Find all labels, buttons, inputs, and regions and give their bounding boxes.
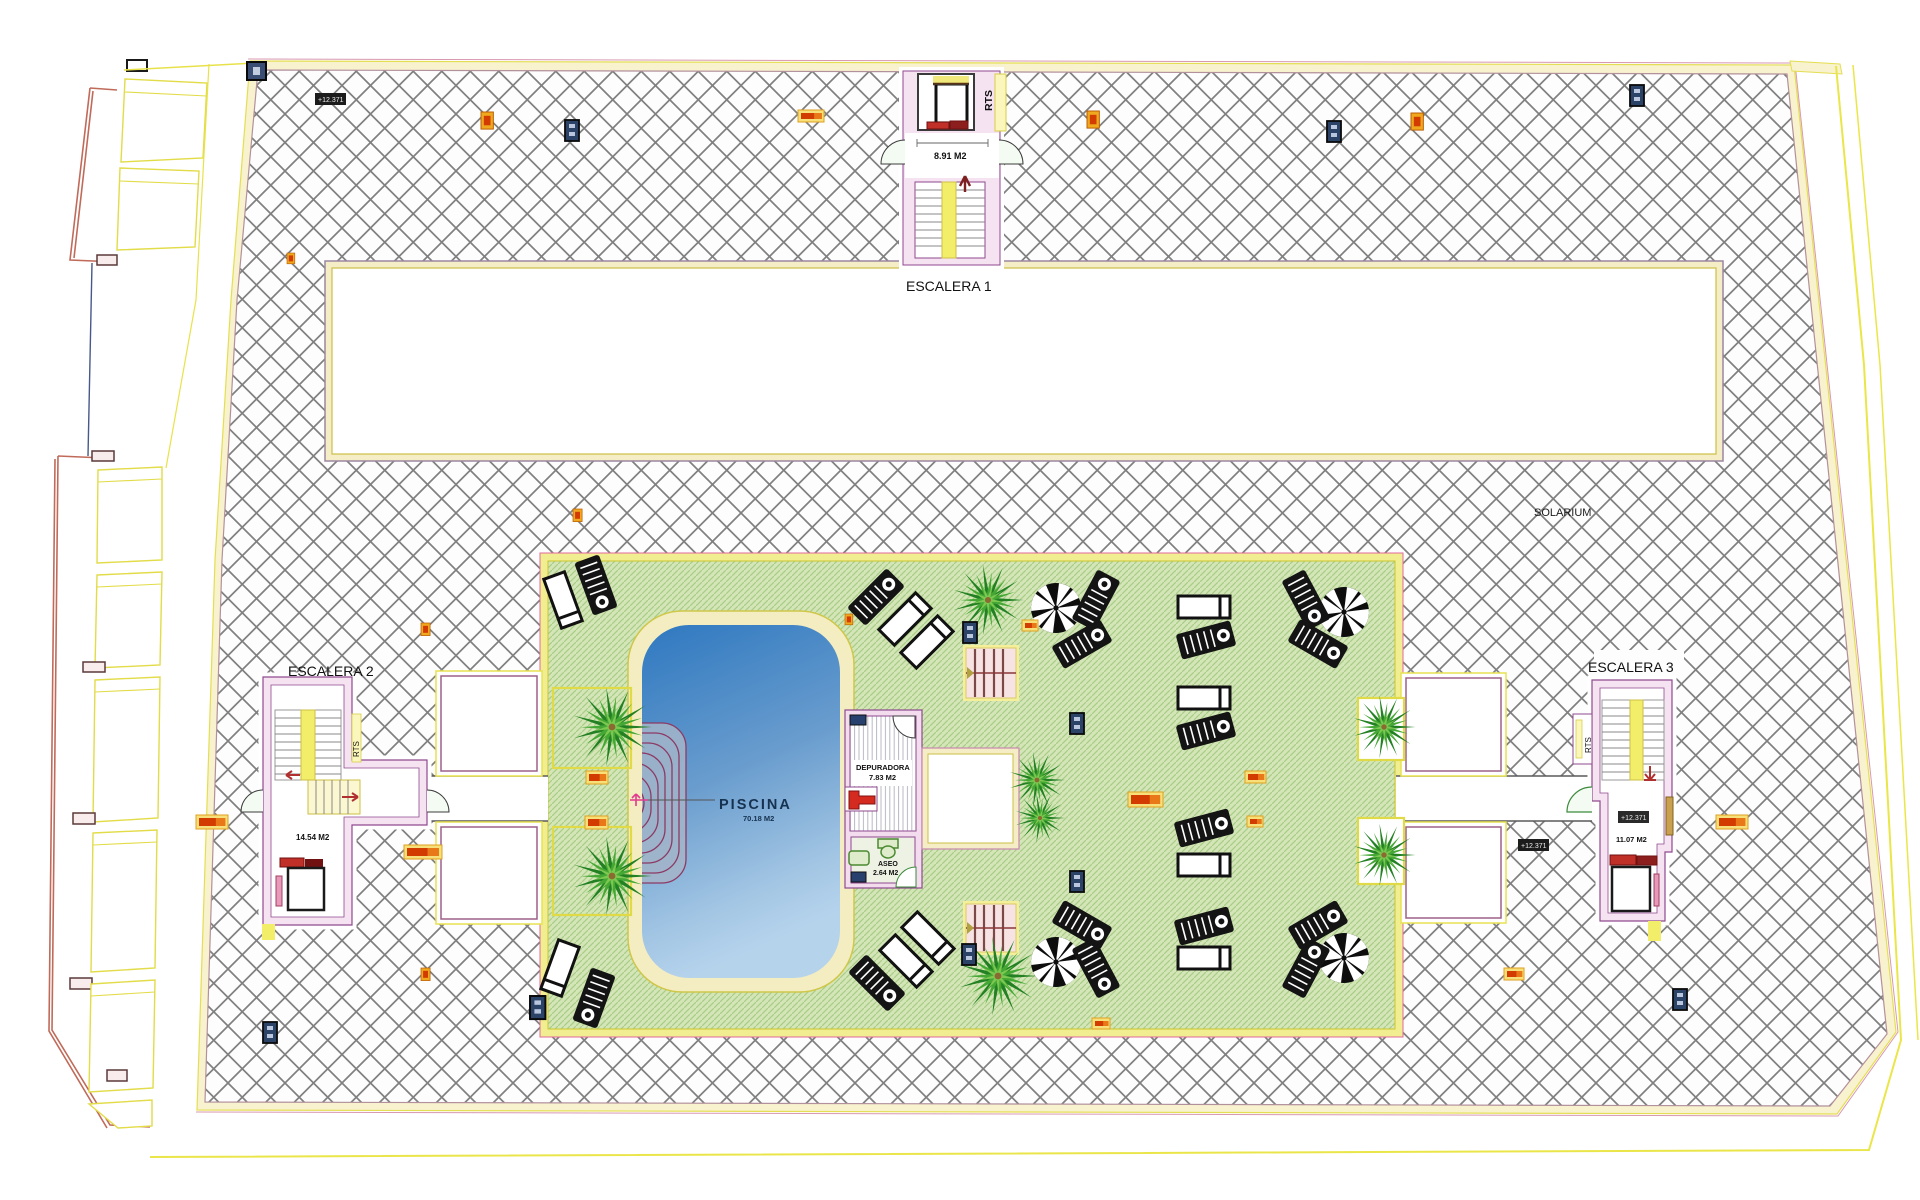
svg-text:11.07 M2: 11.07 M2 — [1616, 835, 1647, 844]
svg-text:8.91 M2: 8.91 M2 — [934, 151, 967, 161]
svg-text:+12.371: +12.371 — [1521, 843, 1547, 850]
svg-text:14.54 M2: 14.54 M2 — [296, 833, 330, 842]
svg-text:+12.371: +12.371 — [318, 97, 344, 104]
svg-text:RTS: RTS — [1584, 737, 1593, 753]
svg-text:RTS: RTS — [983, 90, 995, 111]
svg-text:RTS: RTS — [352, 741, 361, 757]
svg-text:ESCALERA 3: ESCALERA 3 — [1588, 659, 1674, 675]
svg-text:SOLARIUM: SOLARIUM — [1534, 507, 1591, 519]
svg-text:2.64 M2: 2.64 M2 — [873, 870, 898, 877]
svg-text:DEPURADORA: DEPURADORA — [856, 763, 910, 772]
svg-text:PISCINA: PISCINA — [719, 797, 792, 813]
svg-text:70.18 M2: 70.18 M2 — [743, 814, 774, 823]
svg-text:7.83 M2: 7.83 M2 — [869, 773, 896, 782]
svg-text:ESCALERA 2: ESCALERA 2 — [288, 663, 374, 679]
svg-text:+12.371: +12.371 — [1621, 815, 1647, 822]
svg-text:ESCALERA 1: ESCALERA 1 — [906, 278, 992, 294]
svg-text:ASEO: ASEO — [878, 861, 898, 868]
